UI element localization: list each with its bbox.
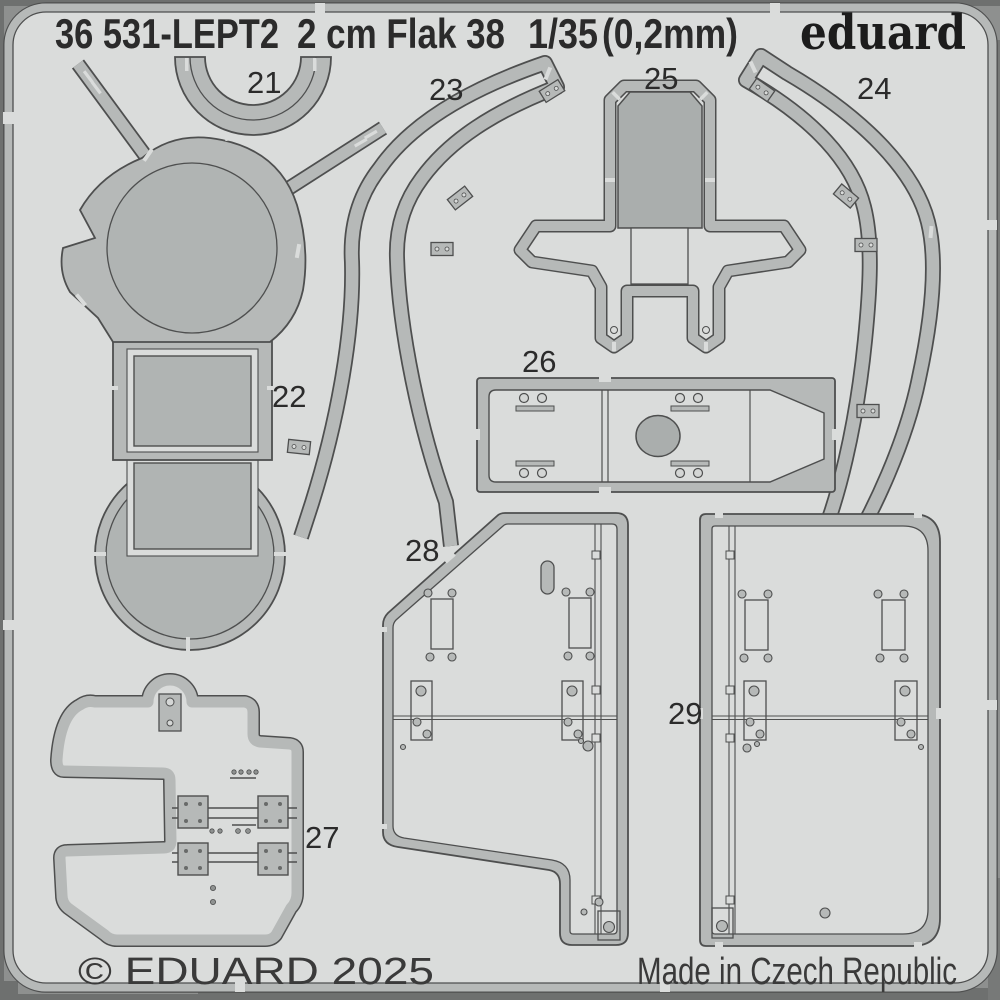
header: 36 531-LEPT2 2 cm Flak 38 1/35 (0,2mm) e…	[55, 5, 966, 61]
part-29-shape	[698, 512, 941, 948]
part-label-28: 28	[405, 533, 439, 568]
part-label-23: 23	[429, 72, 463, 107]
part-26-shape	[475, 377, 837, 493]
copyright-text: © EDUARD 2025	[78, 951, 434, 993]
photoetch-fret-sheet: 36 531-LEPT2 2 cm Flak 38 1/35 (0,2mm) e…	[0, 0, 1000, 1000]
part-label-26: 26	[522, 344, 556, 379]
sheet-code: 36 531-LEPT2	[55, 10, 279, 57]
thickness-label: (0,2mm)	[602, 10, 738, 57]
scale-label: 1/35	[528, 10, 598, 57]
eduard-logo: eduard	[800, 5, 966, 61]
part-label-24: 24	[857, 71, 891, 106]
part-label-25: 25	[644, 61, 678, 96]
fret-drawing: 36 531-LEPT2 2 cm Flak 38 1/35 (0,2mm) e…	[0, 0, 1000, 1000]
origin-text: Made in Czech Republic	[637, 951, 957, 993]
part-label-29: 29	[668, 696, 702, 731]
part-label-27: 27	[305, 820, 339, 855]
page-title: 36 531-LEPT2 2 cm Flak 38 1/35 (0,2mm)	[55, 10, 738, 57]
product-name: 2 cm Flak 38	[297, 10, 505, 57]
part-label-22: 22	[272, 379, 306, 414]
part-label-21: 21	[247, 65, 281, 100]
